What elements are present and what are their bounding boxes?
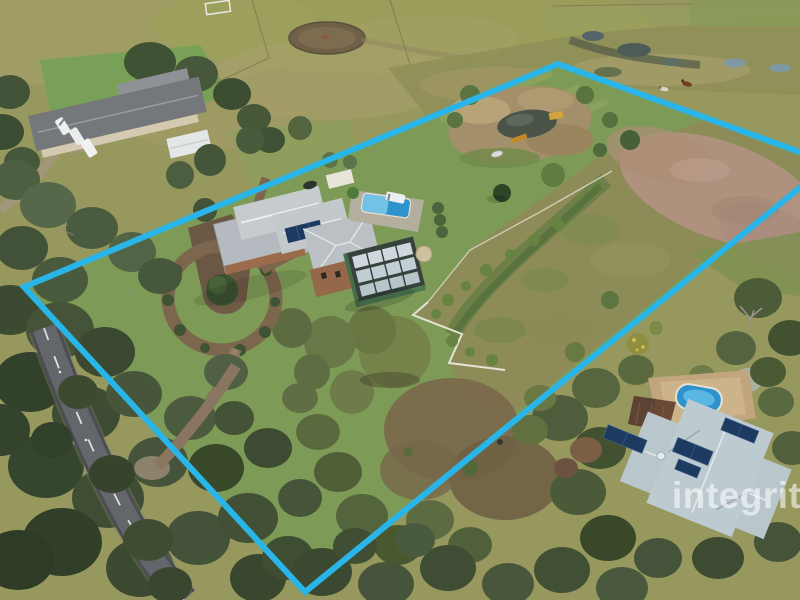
photo-canvas: integrity [0, 0, 800, 600]
agency-watermark: integrity [672, 475, 800, 516]
pond [582, 31, 604, 41]
palm-tree [347, 187, 359, 199]
wattle-bush [627, 333, 649, 355]
water-tank [416, 246, 432, 262]
pond [724, 59, 746, 68]
pond [617, 43, 651, 57]
lawn-tree [541, 163, 565, 187]
pond [769, 64, 791, 72]
aerial-property-photo: integrity [0, 0, 800, 600]
satellite-dish [657, 452, 665, 460]
horse-in-round-yard [321, 35, 329, 39]
